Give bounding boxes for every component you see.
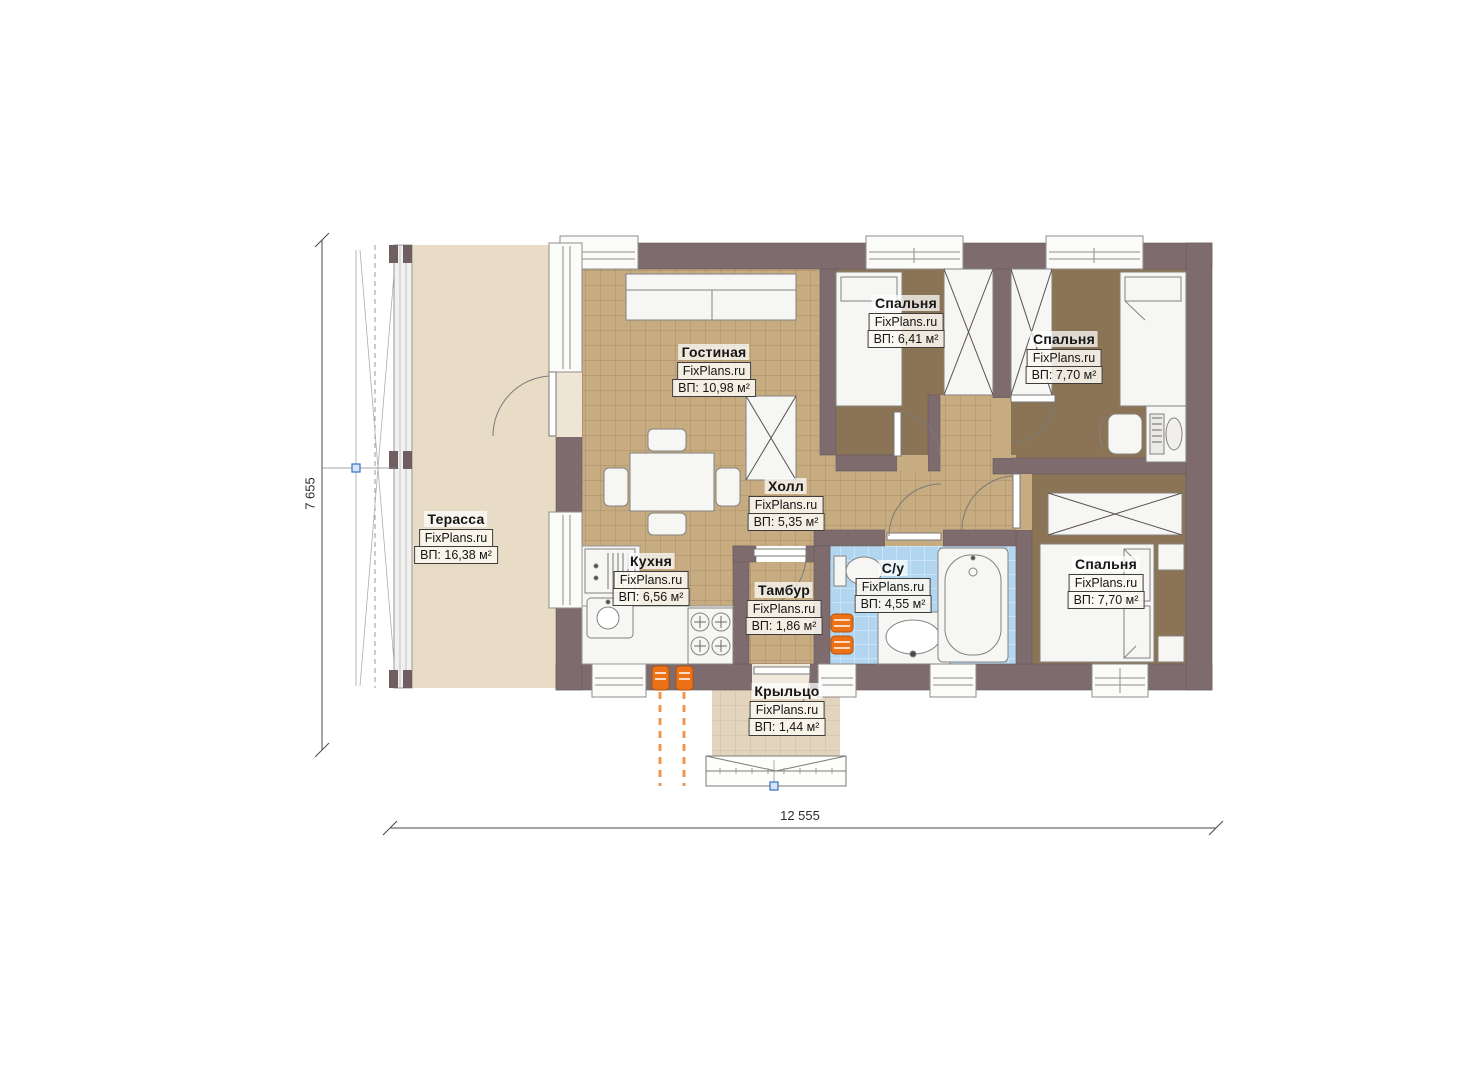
- room-name: Спальня: [1072, 556, 1140, 572]
- watermark: FixPlans.ru: [749, 496, 824, 514]
- bedroom3-nightstand-2: [1158, 636, 1184, 662]
- room-label-bedroom1: Спальня FixPlans.ru ВП: 6,41 м²: [868, 295, 945, 348]
- room-label-tambour: Тамбур FixPlans.ru ВП: 1,86 м²: [746, 582, 823, 635]
- room-label-bedroom2: Спальня FixPlans.ru ВП: 7,70 м²: [1026, 331, 1103, 384]
- wall-bedroom1-bottom: [836, 455, 897, 471]
- radiator-bathroom-1: [831, 614, 853, 632]
- terrace-floor: [400, 245, 556, 688]
- room-area: ВП: 7,70 м²: [1026, 366, 1103, 384]
- watermark: FixPlans.ru: [1069, 574, 1144, 592]
- room-label-terrace: Терасса FixPlans.ru ВП: 16,38 м²: [414, 511, 498, 564]
- room-area: ВП: 4,55 м²: [855, 595, 932, 613]
- wall-bedroom1-bedroom2: [993, 269, 1011, 398]
- room-label-kitchen: Кухня FixPlans.ru ВП: 6,56 м²: [613, 553, 690, 606]
- wall-exterior-right: [1186, 243, 1212, 690]
- watermark: FixPlans.ru: [419, 529, 494, 547]
- radiator-kitchen-1: [652, 666, 669, 690]
- room-name: Тамбур: [755, 582, 813, 598]
- wall-tambour-top-left: [733, 546, 756, 562]
- bathtub: [938, 548, 1008, 662]
- stove: [688, 608, 733, 664]
- bedroom2-bed: [1120, 272, 1186, 406]
- floor-plan: Терасса FixPlans.ru ВП: 16,38 м² Гостина…: [0, 0, 1474, 1080]
- wall-bedroom3-left: [1016, 530, 1032, 664]
- radiator-kitchen-2: [676, 666, 693, 690]
- window-living-left: [549, 243, 582, 372]
- room-name: Спальня: [1030, 331, 1098, 347]
- watermark: FixPlans.ru: [856, 578, 931, 596]
- hall-corridor-floor: [940, 395, 993, 471]
- terrace-railing: [360, 245, 412, 688]
- radiator-bathroom-2: [831, 636, 853, 654]
- hall-wardrobe: [746, 396, 796, 480]
- room-label-bathroom: С/у FixPlans.ru ВП: 4,55 м²: [855, 560, 932, 613]
- marker-left: [352, 464, 360, 472]
- room-name: Терасса: [425, 511, 488, 527]
- wall-bathroom-top-left: [814, 530, 885, 546]
- marker-porch: [770, 782, 778, 790]
- window-bathroom-bottom-2: [930, 664, 976, 697]
- room-label-living: Гостиная FixPlans.ru ВП: 10,98 м²: [672, 344, 756, 397]
- floor-plan-canvas: [0, 0, 1474, 1080]
- watermark: FixPlans.ru: [1027, 349, 1102, 367]
- room-area: ВП: 16,38 м²: [414, 546, 498, 564]
- room-name: Крыльцо: [751, 683, 822, 699]
- room-area: ВП: 7,70 м²: [1068, 591, 1145, 609]
- window-bedroom1-top: [866, 236, 963, 269]
- dimension-width: 12 555: [758, 808, 842, 823]
- room-name: Гостиная: [679, 344, 750, 360]
- window-bedroom2-top: [1046, 236, 1143, 269]
- watermark: FixPlans.ru: [614, 571, 689, 589]
- room-area: ВП: 6,56 м²: [613, 588, 690, 606]
- watermark: FixPlans.ru: [869, 313, 944, 331]
- room-label-bedroom3: Спальня FixPlans.ru ВП: 7,70 м²: [1068, 556, 1145, 609]
- room-name: С/у: [879, 560, 907, 576]
- room-label-hall: Холл FixPlans.ru ВП: 5,35 м²: [748, 478, 825, 531]
- bedroom3-wardrobe: [1048, 493, 1182, 535]
- room-name: Кухня: [627, 553, 675, 569]
- room-area: ВП: 1,44 м²: [749, 718, 826, 736]
- room-area: ВП: 1,86 м²: [746, 617, 823, 635]
- room-name: Холл: [765, 478, 807, 494]
- wall-bathroom-top-right: [943, 530, 1016, 546]
- window-kitchen-left: [549, 512, 582, 608]
- bedroom3-nightstand-1: [1158, 544, 1184, 570]
- room-name: Спальня: [872, 295, 940, 311]
- room-area: ВП: 5,35 м²: [748, 513, 825, 531]
- bedroom1-wardrobe: [944, 269, 993, 395]
- room-area: ВП: 6,41 м²: [868, 330, 945, 348]
- room-label-porch: Крыльцо FixPlans.ru ВП: 1,44 м²: [749, 683, 826, 736]
- dimension-height: 7 655: [303, 466, 318, 522]
- window-bedroom3-bottom: [1092, 664, 1148, 697]
- window-kitchen-bottom: [592, 664, 646, 697]
- watermark: FixPlans.ru: [677, 362, 752, 380]
- heating-pipe-lines: [660, 692, 684, 786]
- watermark: FixPlans.ru: [750, 701, 825, 719]
- wall-bedroom1-left: [820, 269, 836, 455]
- watermark: FixPlans.ru: [747, 600, 822, 618]
- room-area: ВП: 10,98 м²: [672, 379, 756, 397]
- sofa: [626, 274, 796, 320]
